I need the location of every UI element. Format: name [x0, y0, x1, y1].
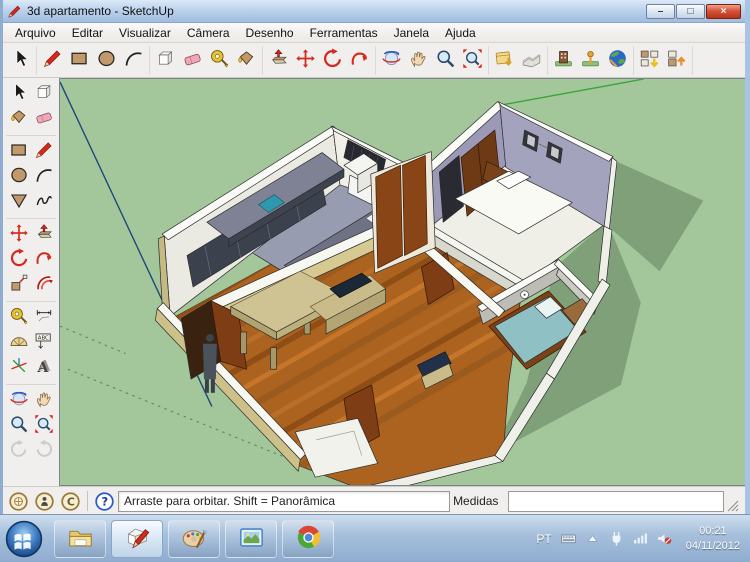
eraser-tool-button[interactable]	[31, 106, 56, 131]
menubar: ArquivoEditarVisualizarCâmeraDesenhoFerr…	[3, 23, 745, 43]
rectangle-tool-button[interactable]	[6, 139, 31, 164]
google-earth-icon	[607, 48, 628, 72]
clock-time: 00:21	[699, 525, 727, 537]
window-title: 3d apartamento - SketchUp	[27, 4, 646, 18]
photo-textures-tool-button[interactable]	[550, 47, 577, 74]
clock[interactable]: 00:21 04/11/2012	[686, 524, 740, 553]
tool-palette-row	[6, 247, 56, 272]
3d-apartment-model[interactable]	[60, 79, 745, 485]
zoom-extents-tool-button[interactable]	[459, 47, 486, 74]
credits-icon[interactable]	[34, 491, 55, 512]
text-icon: ABC	[34, 331, 54, 354]
start-button[interactable]	[5, 520, 43, 558]
eraser-icon	[34, 107, 54, 130]
get-models-tool-button[interactable]	[636, 47, 663, 74]
zoom-icon	[435, 48, 456, 72]
circle-tool-button[interactable]	[6, 164, 31, 189]
network-icon[interactable]	[632, 530, 649, 547]
tape-measure-tool-button[interactable]	[6, 305, 31, 330]
desktop-screen: 3d apartamento - SketchUp – □ × ArquivoE…	[0, 0, 750, 562]
follow-me-icon	[34, 248, 54, 271]
orbit-tool-button[interactable]	[6, 388, 31, 413]
menu-ajuda[interactable]: Ajuda	[437, 25, 484, 41]
sketchup-window: 3d apartamento - SketchUp – □ × ArquivoE…	[0, 0, 750, 515]
tool-palette-row	[6, 384, 56, 413]
freehand-tool-button[interactable]	[31, 189, 56, 214]
menu-editar[interactable]: Editar	[64, 25, 111, 41]
next-tool-button[interactable]	[31, 438, 56, 463]
model-pin-icon	[580, 48, 601, 72]
tool-palette-row	[6, 272, 56, 297]
push-pull-tool-button[interactable]	[31, 222, 56, 247]
close-button[interactable]: ×	[706, 4, 741, 19]
select-icon	[9, 82, 29, 105]
zoom-extents-icon	[34, 414, 54, 437]
rectangle-icon	[9, 140, 29, 163]
taskbar-paint-button[interactable]	[168, 520, 220, 558]
scale-tool-button[interactable]	[6, 272, 31, 297]
share-model-icon	[666, 48, 687, 72]
previous-icon	[9, 439, 29, 462]
minimize-button[interactable]: –	[646, 4, 675, 19]
arc-icon	[123, 48, 144, 72]
tool-palette-row	[6, 164, 56, 189]
follow-me-tool-button[interactable]	[31, 247, 56, 272]
zoom-extents-icon	[462, 48, 483, 72]
toggle-terrain-tool-button[interactable]	[518, 47, 545, 74]
axes-tool-button[interactable]	[6, 355, 31, 380]
google-earth-tool-button[interactable]	[604, 47, 631, 74]
tool-palette-row	[6, 301, 56, 330]
rectangle-icon	[69, 48, 90, 72]
measurements-label: Medidas	[453, 494, 505, 508]
statusbar-separator	[87, 491, 88, 511]
share-model-tool-button[interactable]	[663, 47, 690, 74]
volume-muted-icon[interactable]	[656, 530, 673, 547]
offset-tool-button[interactable]	[31, 272, 56, 297]
orbit-tool-button[interactable]	[378, 47, 405, 74]
tool-palette-row	[6, 81, 56, 106]
dimension-icon	[34, 306, 54, 329]
polygon-icon	[9, 190, 29, 213]
text-3d-tool-button[interactable]: AA	[31, 355, 56, 380]
select-tool-button[interactable]	[7, 47, 34, 74]
follow-me-tool-button[interactable]	[346, 47, 373, 74]
help-icon[interactable]: ?	[94, 491, 115, 512]
line-tool-button[interactable]	[39, 47, 66, 74]
freehand-icon	[34, 190, 54, 213]
tool-palette-row: AA	[6, 355, 56, 380]
text-3d-icon: AA	[34, 356, 54, 379]
explorer-icon	[67, 524, 94, 554]
previous-tool-button[interactable]	[6, 438, 31, 463]
toolbar-left: ABCAA	[3, 78, 59, 486]
move-tool-button[interactable]	[6, 222, 31, 247]
line-tool-button[interactable]	[31, 139, 56, 164]
move-icon	[295, 48, 316, 72]
tape-measure-icon	[9, 306, 29, 329]
tool-palette-row	[6, 106, 56, 131]
rectangle-tool-button[interactable]	[66, 47, 93, 74]
rotate-tool-button[interactable]	[6, 247, 31, 272]
make-component-icon	[155, 48, 176, 72]
taskbar-photo-viewer-button[interactable]	[225, 520, 277, 558]
taskbar-sketchup-button[interactable]	[111, 520, 163, 558]
tool-palette-row	[6, 189, 56, 214]
measurements-input[interactable]	[508, 491, 724, 512]
geolocation-icon[interactable]	[8, 491, 29, 512]
resize-grip[interactable]	[727, 490, 740, 512]
rotate-tool-button[interactable]	[319, 47, 346, 74]
toolbar-group	[489, 46, 548, 75]
circle-icon	[96, 48, 117, 72]
zoom-tool-button[interactable]	[6, 413, 31, 438]
toolbar-group	[548, 46, 634, 75]
tray-expand-icon[interactable]	[584, 530, 601, 547]
menu-desenho[interactable]: Desenho	[238, 25, 302, 41]
photo-viewer-icon	[238, 524, 265, 554]
rotate-icon	[322, 48, 343, 72]
svg-text:ABC: ABC	[37, 336, 48, 342]
orbit-icon	[381, 48, 402, 72]
protractor-icon	[9, 331, 29, 354]
menu-visualizar[interactable]: Visualizar	[111, 25, 179, 41]
main-area: ABCAA	[3, 78, 745, 486]
add-location-icon	[494, 48, 515, 72]
circle-icon	[9, 165, 29, 188]
paint-bucket-tool-button[interactable]	[233, 47, 260, 74]
toolbar-group	[634, 46, 693, 75]
sketchup-logo-icon	[7, 4, 22, 19]
svg-text:C: C	[67, 495, 75, 508]
pan-tool-button[interactable]	[31, 388, 56, 413]
tool-palette-row	[6, 135, 56, 164]
axes-icon	[9, 356, 29, 379]
arc-tool-button[interactable]	[120, 47, 147, 74]
add-location-tool-button[interactable]	[491, 47, 518, 74]
tool-palette-row	[6, 438, 56, 463]
language-indicator[interactable]: PT	[536, 532, 551, 546]
push-pull-icon	[34, 223, 54, 246]
circle-tool-button[interactable]	[93, 47, 120, 74]
taskbar-explorer-button[interactable]	[54, 520, 106, 558]
sketchup-icon	[124, 524, 151, 554]
statusbar: C ? Arraste para orbitar. Shift = Panorâ…	[3, 486, 745, 515]
power-icon[interactable]	[608, 530, 625, 547]
tool-palette-row: ABC	[6, 330, 56, 355]
make-component-tool-button[interactable]	[152, 47, 179, 74]
menu-arquivo[interactable]: Arquivo	[7, 25, 64, 41]
menu-camera[interactable]: Câmera	[179, 25, 238, 41]
arc-icon	[34, 165, 54, 188]
push-pull-tool-button[interactable]	[265, 47, 292, 74]
maximize-button[interactable]: □	[676, 4, 705, 19]
toolbar-group	[5, 46, 37, 75]
pan-tool-button[interactable]	[405, 47, 432, 74]
orbit-icon	[9, 389, 29, 412]
paint-bucket-tool-button[interactable]	[6, 106, 31, 131]
clock-date: 04/11/2012	[686, 540, 740, 552]
paint-bucket-icon	[236, 48, 257, 72]
photo-textures-icon	[553, 48, 574, 72]
zoom-extents-tool-button[interactable]	[31, 413, 56, 438]
svg-text:A: A	[36, 360, 49, 376]
pan-icon	[34, 389, 54, 412]
text-tool-button[interactable]: ABC	[31, 330, 56, 355]
tape-measure-tool-button[interactable]	[206, 47, 233, 74]
scale-icon	[9, 273, 29, 296]
taskbar: PT 00:21 04/11/2012	[0, 514, 750, 562]
toolbar-top	[3, 43, 745, 78]
paint-icon	[181, 524, 208, 554]
offset-icon	[34, 273, 54, 296]
eraser-icon	[182, 48, 203, 72]
polygon-tool-button[interactable]	[6, 189, 31, 214]
eraser-tool-button[interactable]	[179, 47, 206, 74]
zoom-tool-button[interactable]	[432, 47, 459, 74]
move-tool-button[interactable]	[292, 47, 319, 74]
zoom-icon	[9, 414, 29, 437]
follow-me-icon	[349, 48, 370, 72]
menu-janela[interactable]: Janela	[386, 25, 437, 41]
tool-palette-row	[6, 413, 56, 438]
keyboard-icon[interactable]	[560, 530, 577, 547]
protractor-tool-button[interactable]	[6, 330, 31, 355]
dimension-tool-button[interactable]	[31, 305, 56, 330]
chrome-icon	[295, 524, 322, 554]
make-component-icon	[34, 82, 54, 105]
model-pin-tool-button[interactable]	[577, 47, 604, 74]
copyright-icon[interactable]: C	[60, 491, 81, 512]
menu-ferramentas[interactable]: Ferramentas	[302, 25, 386, 41]
status-hint: Arraste para orbitar. Shift = Panorâmica	[118, 491, 450, 512]
line-icon	[42, 48, 63, 72]
move-icon	[9, 223, 29, 246]
tool-palette-row	[6, 218, 56, 247]
system-tray: PT 00:21 04/11/2012	[536, 524, 745, 553]
tape-measure-icon	[209, 48, 230, 72]
titlebar[interactable]: 3d apartamento - SketchUp – □ ×	[3, 0, 745, 23]
arc-tool-button[interactable]	[31, 164, 56, 189]
rotate-icon	[9, 248, 29, 271]
paint-bucket-icon	[9, 107, 29, 130]
drawing-area[interactable]	[59, 78, 745, 486]
next-icon	[34, 439, 54, 462]
pan-icon	[408, 48, 429, 72]
toolbar-group	[37, 46, 150, 75]
make-component-tool-button[interactable]	[31, 81, 56, 106]
toolbar-group	[376, 46, 489, 75]
toggle-terrain-icon	[521, 48, 542, 72]
toolbar-group	[150, 46, 263, 75]
taskbar-chrome-button[interactable]	[282, 520, 334, 558]
svg-text:?: ?	[101, 494, 108, 508]
line-icon	[34, 140, 54, 163]
push-pull-icon	[268, 48, 289, 72]
toolbar-group	[263, 46, 376, 75]
select-tool-button[interactable]	[6, 81, 31, 106]
get-models-icon	[639, 48, 660, 72]
select-icon	[10, 48, 31, 72]
